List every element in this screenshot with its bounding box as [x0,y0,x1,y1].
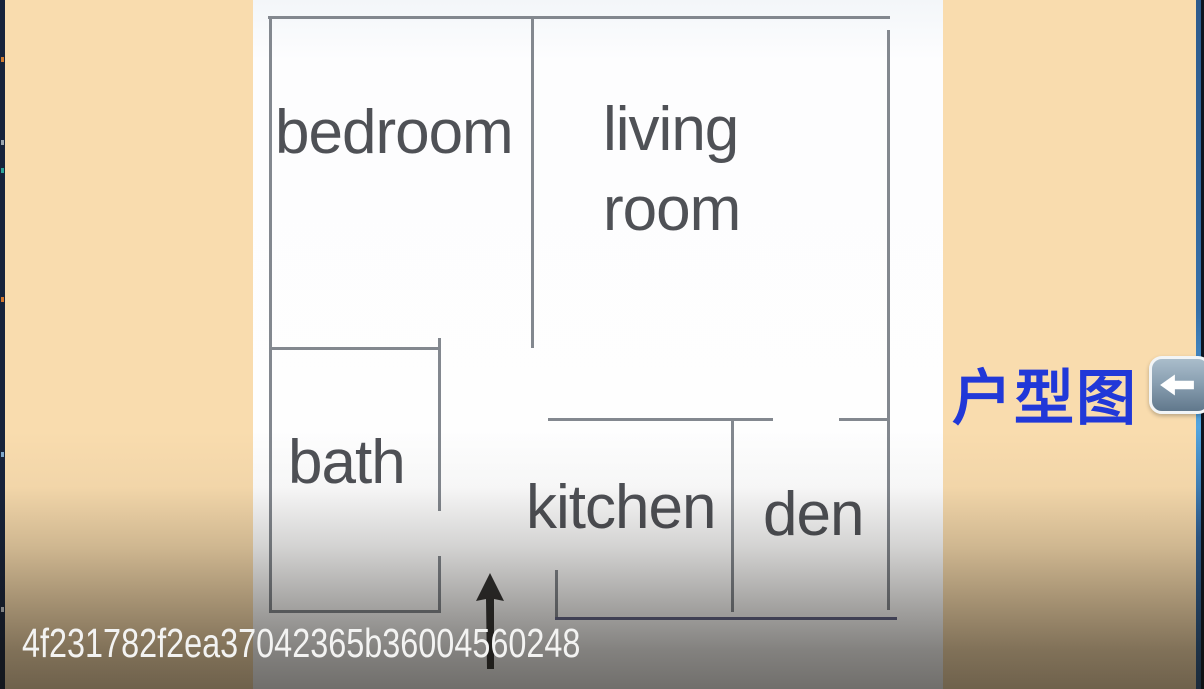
edge-speck [1,452,4,457]
edge-speck [1,607,4,612]
floor-plan-caption: 户型图 [952,350,1138,437]
edge-speck [1,140,4,145]
wall-bath-bottom [269,610,441,613]
wall-bottom [555,617,897,620]
wall-bath-right-lower [438,556,441,610]
living-room-line1: living [603,95,738,164]
wall-kitchen-den-divider [731,418,734,612]
wall-right [887,30,890,610]
room-label-kitchen: kitchen [526,475,715,540]
wall-bath-right-upper [438,338,441,511]
wall-den-top [839,418,890,421]
edge-speck [1,168,4,173]
wall-kitchen-left [555,570,558,620]
room-label-bath: bath [288,430,405,495]
wall-bedroom-living-divider [531,18,534,348]
room-label-living-room: living room [603,90,740,250]
left-edge-strip [0,0,5,689]
left-arrow-icon [1158,372,1196,398]
room-label-bedroom: bedroom [275,100,513,165]
wall-top [268,16,890,19]
watermark-text: 4f231782f2ea37042365b36004560248 [22,620,580,667]
edge-speck [1,57,4,62]
back-button[interactable] [1149,356,1204,414]
edge-speck [1,297,4,302]
living-room-line2: room [603,175,740,244]
video-frame: bedroom living room bath kitchen den 4f2… [0,0,1204,689]
wall-left [269,18,272,613]
wall-bath-top [269,347,441,350]
wall-kitchen-top [548,418,773,421]
room-label-den: den [763,482,863,547]
